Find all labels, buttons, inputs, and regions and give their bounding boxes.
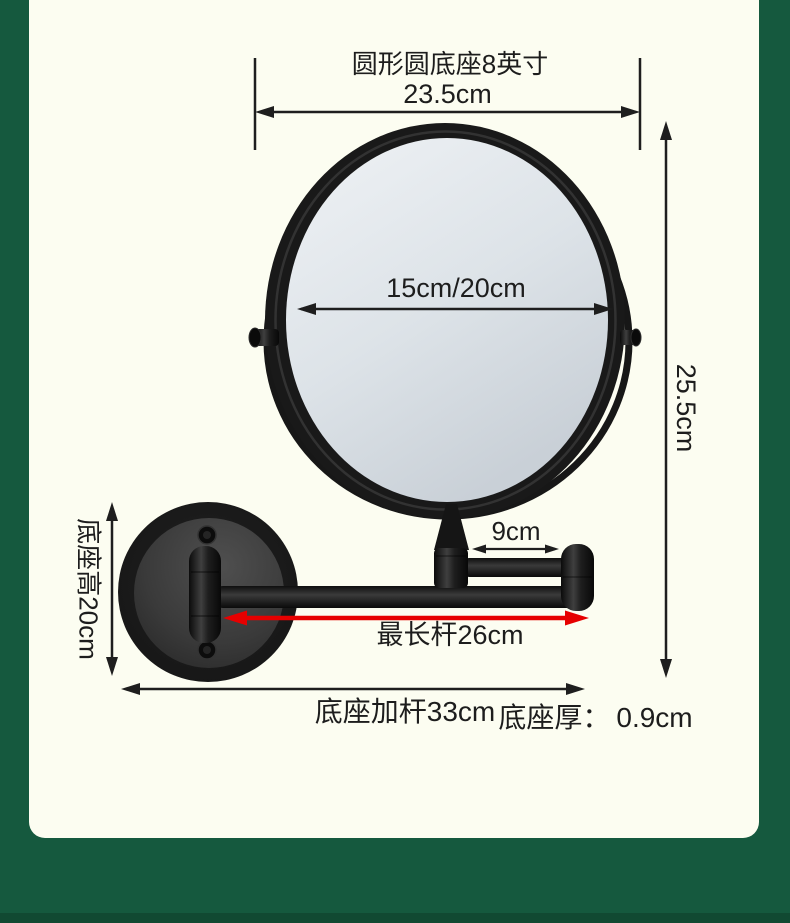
- bottom-edge-shade: [0, 913, 790, 923]
- mirror-diameter-dimension: 15cm/20cm: [306, 273, 606, 303]
- base-thickness-value: 0.9cm: [616, 702, 692, 733]
- left-pivot-knob: [249, 328, 279, 347]
- base-thickness-label: 底座厚：: [498, 702, 610, 733]
- product-dimension-diagram: 圆形圆底座8英寸 23.5cm 15cm/20cm 9cm 最长杆26cm 底座…: [0, 0, 790, 923]
- mirror: [265, 123, 625, 519]
- top-width-dimension: 23.5cm: [250, 79, 645, 109]
- overall-height-dimension: 25.5cm: [671, 364, 701, 453]
- max-rod-dimension: 最长杆26cm: [300, 620, 600, 650]
- base-thickness-dimension: 底座厚：0.9cm: [488, 702, 703, 733]
- top-label: 圆形圆底座8英寸: [250, 50, 650, 79]
- upper-arm-dimension: 9cm: [466, 517, 566, 546]
- base-height-dimension: 底座高20cm: [73, 518, 102, 660]
- right-pivot-knob: [620, 329, 641, 346]
- mirror-illustration: [0, 0, 790, 923]
